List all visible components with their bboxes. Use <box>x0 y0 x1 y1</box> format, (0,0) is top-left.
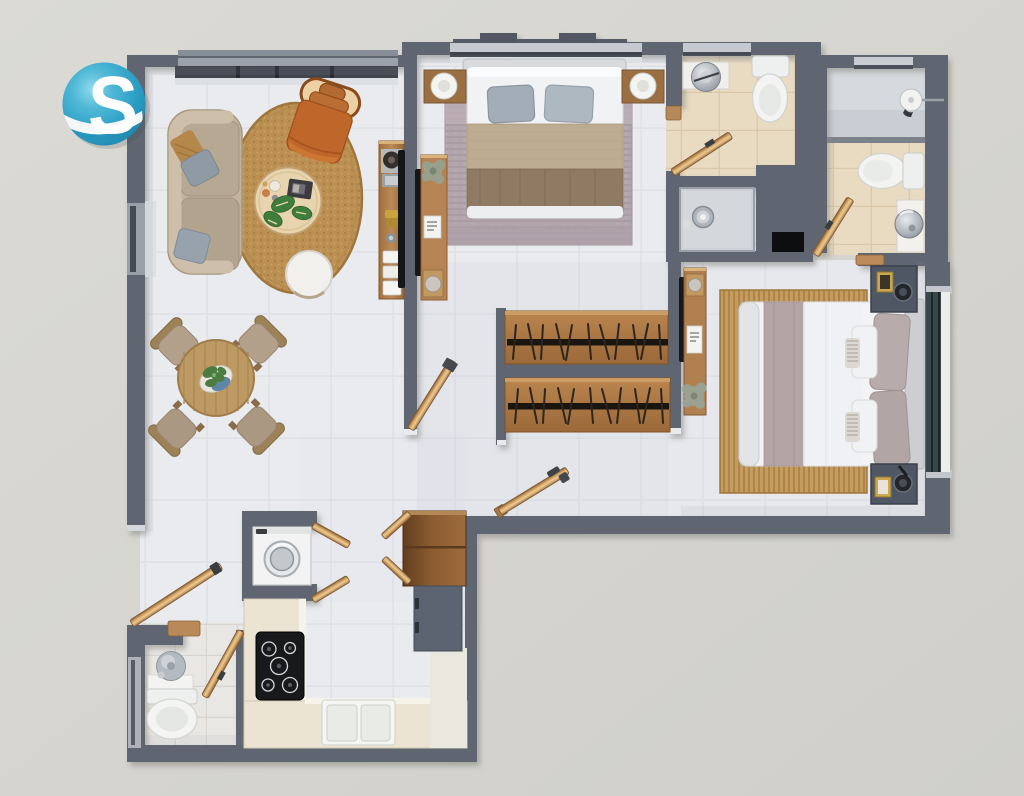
svg-text:S: S <box>88 59 138 151</box>
